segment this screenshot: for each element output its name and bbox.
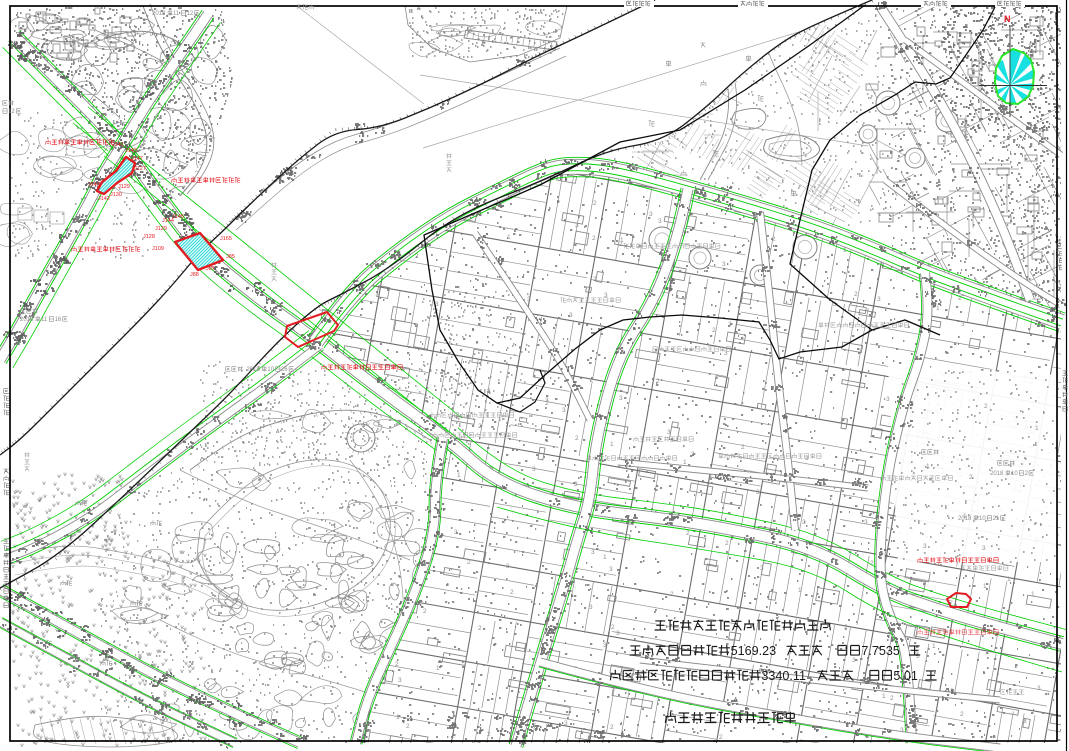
svg-text:J129: J129 [118, 184, 130, 190]
svg-text:1: 1 [620, 237, 624, 244]
svg-text:3: 3 [603, 642, 607, 649]
svg-text:J88: J88 [190, 272, 199, 278]
svg-text:3: 3 [574, 481, 578, 488]
svg-text:3: 3 [506, 563, 510, 570]
svg-text:J147: J147 [131, 156, 143, 162]
svg-text:2: 2 [984, 403, 988, 410]
svg-text:2018: 2018 [246, 367, 260, 373]
svg-text:2: 2 [969, 474, 973, 481]
svg-text:3: 3 [532, 466, 536, 473]
svg-text:1: 1 [1007, 576, 1011, 583]
svg-text:2: 2 [593, 200, 597, 207]
svg-text:3: 3 [802, 519, 806, 526]
svg-text:3: 3 [575, 222, 579, 229]
svg-text:3: 3 [658, 218, 662, 225]
svg-text:3: 3 [591, 549, 595, 556]
svg-text:J128: J128 [143, 234, 155, 240]
svg-text:3: 3 [961, 321, 965, 328]
svg-text:3: 3 [649, 211, 653, 218]
svg-text:3: 3 [545, 397, 549, 404]
svg-text:1: 1 [1035, 425, 1039, 432]
svg-text:1: 1 [507, 234, 511, 241]
svg-text:1: 1 [436, 665, 440, 672]
svg-text:12: 12 [187, 11, 194, 17]
svg-text:3340.11: 3340.11 [761, 669, 806, 683]
svg-text:J87: J87 [206, 266, 215, 272]
svg-text:3: 3 [864, 519, 868, 526]
svg-text:1: 1 [798, 587, 802, 594]
svg-text:3: 3 [756, 489, 760, 496]
svg-text:2: 2 [487, 731, 491, 738]
svg-text:2: 2 [467, 559, 471, 566]
svg-text:J143: J143 [125, 148, 137, 154]
svg-text:3: 3 [886, 396, 890, 403]
svg-text:2: 2 [510, 589, 514, 596]
svg-text:5.01: 5.01 [893, 669, 918, 683]
svg-text:3: 3 [398, 677, 402, 684]
svg-text:1: 1 [610, 441, 614, 448]
svg-text:2: 2 [854, 291, 858, 298]
svg-text:3: 3 [589, 604, 593, 611]
svg-text:7.7535: 7.7535 [861, 644, 900, 658]
svg-text:16: 16 [55, 317, 62, 323]
svg-text:1: 1 [603, 554, 607, 561]
svg-text:2: 2 [423, 608, 427, 615]
svg-text:2: 2 [406, 723, 410, 730]
svg-text:3: 3 [562, 407, 566, 414]
svg-text:2: 2 [844, 624, 848, 631]
svg-text:1: 1 [683, 459, 687, 466]
svg-text:3: 3 [923, 543, 927, 550]
svg-text:J85: J85 [226, 254, 235, 260]
svg-text:2: 2 [712, 327, 716, 334]
svg-text:2: 2 [719, 734, 723, 741]
svg-text:J109: J109 [152, 246, 164, 252]
svg-text:2: 2 [728, 321, 732, 328]
svg-text:3: 3 [691, 451, 695, 458]
svg-text:2: 2 [725, 540, 729, 547]
svg-text:1: 1 [1031, 591, 1035, 598]
svg-text:2: 2 [686, 530, 690, 537]
svg-text:1: 1 [709, 474, 713, 481]
svg-text:J129: J129 [155, 226, 167, 232]
svg-text:2: 2 [741, 444, 745, 451]
svg-text:2018: 2018 [152, 11, 166, 17]
svg-text:2: 2 [890, 695, 894, 702]
svg-text:11: 11 [173, 11, 180, 17]
svg-text:2: 2 [478, 625, 482, 632]
svg-text:2: 2 [611, 624, 615, 631]
svg-text:2018: 2018 [20, 317, 34, 323]
svg-text:2: 2 [593, 276, 597, 283]
svg-text:5169.23: 5169.23 [731, 644, 777, 658]
svg-text:3: 3 [852, 657, 856, 664]
svg-text:J165: J165 [220, 236, 232, 242]
svg-text:1: 1 [396, 714, 400, 721]
svg-text:J130: J130 [110, 192, 122, 198]
svg-text:3: 3 [616, 630, 620, 637]
svg-text:J145: J145 [172, 214, 184, 220]
svg-text:3: 3 [1023, 718, 1027, 725]
svg-text:3: 3 [564, 720, 568, 727]
svg-text:3: 3 [609, 566, 613, 573]
svg-text:3: 3 [569, 312, 573, 319]
svg-text:2: 2 [575, 435, 579, 442]
svg-text:2: 2 [670, 591, 674, 598]
svg-text:1: 1 [936, 305, 940, 312]
svg-text:3: 3 [454, 529, 458, 536]
svg-text:26: 26 [281, 367, 288, 373]
svg-text:J127: J127 [134, 166, 146, 172]
svg-text:J142: J142 [98, 196, 110, 202]
svg-text:3: 3 [982, 545, 986, 552]
svg-text:2018: 2018 [990, 471, 1004, 477]
svg-text:1: 1 [983, 583, 987, 590]
svg-text:3: 3 [760, 565, 764, 572]
svg-text:3: 3 [1037, 685, 1041, 692]
svg-text:2: 2 [772, 236, 776, 243]
svg-text:2: 2 [610, 724, 614, 731]
svg-text:1: 1 [457, 472, 461, 479]
svg-text:2: 2 [656, 378, 660, 385]
svg-text:3: 3 [667, 429, 671, 436]
svg-text:2: 2 [592, 235, 596, 242]
svg-text:10: 10 [1011, 471, 1018, 477]
svg-text:11: 11 [41, 317, 48, 323]
svg-text:3: 3 [722, 261, 726, 268]
svg-text:3: 3 [619, 395, 623, 402]
svg-text:N: N [1004, 14, 1011, 24]
svg-text:1: 1 [932, 643, 936, 650]
svg-text:10: 10 [267, 367, 274, 373]
svg-text:2: 2 [395, 661, 399, 668]
svg-text:2: 2 [478, 423, 482, 430]
svg-text:10: 10 [979, 516, 986, 522]
svg-text:J143: J143 [88, 182, 100, 188]
svg-text:J141: J141 [112, 142, 124, 148]
svg-text:3: 3 [527, 296, 531, 303]
svg-text:1: 1 [926, 463, 930, 470]
svg-text:2018: 2018 [958, 516, 972, 522]
svg-text:2: 2 [960, 711, 964, 718]
svg-text:3: 3 [877, 296, 881, 303]
svg-text:12: 12 [8, 109, 15, 115]
svg-text:1: 1 [882, 693, 886, 700]
svg-text:21: 21 [993, 516, 1000, 522]
